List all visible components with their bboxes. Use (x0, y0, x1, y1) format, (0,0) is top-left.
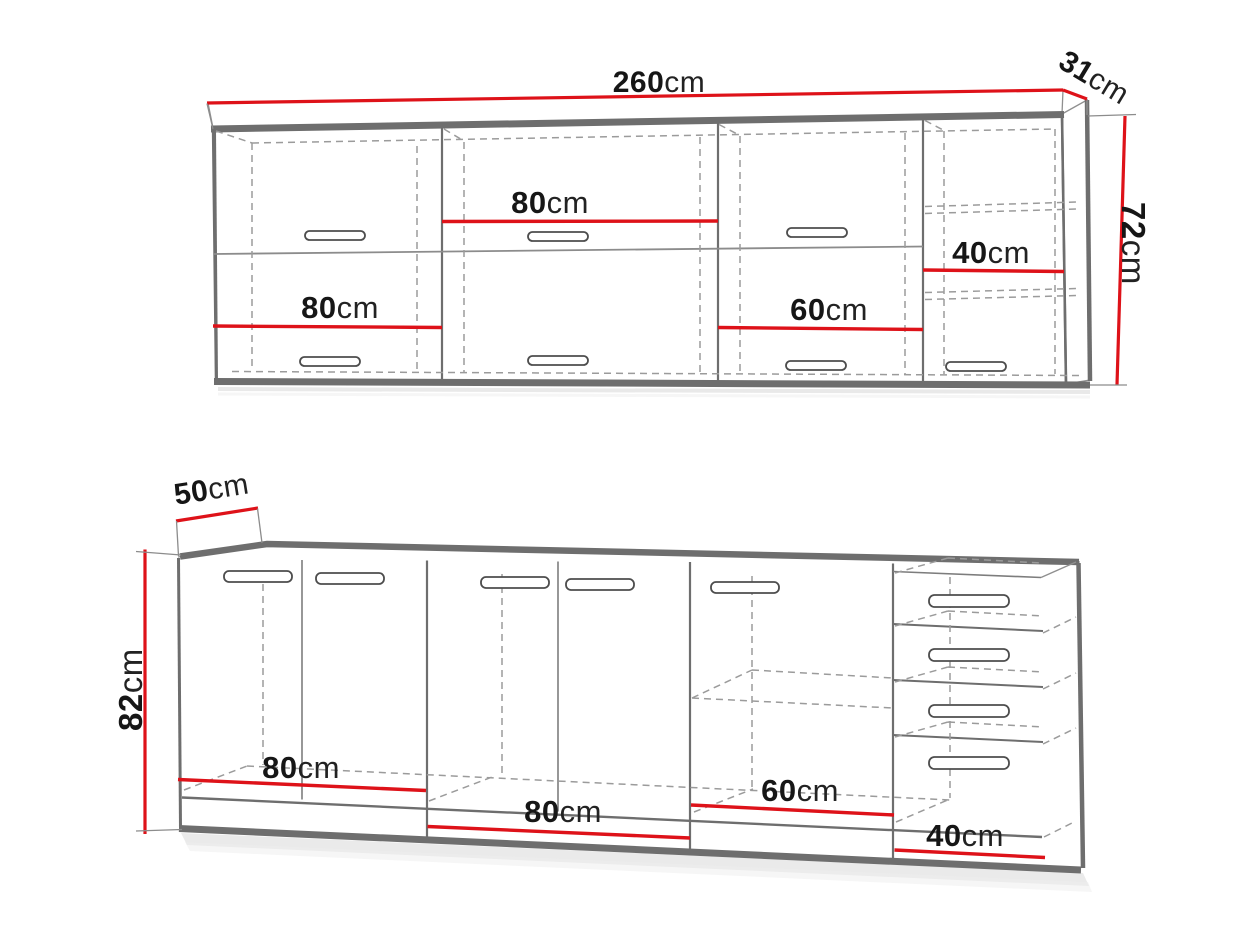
wall-cab4-label: 40cm (952, 235, 1030, 270)
door-handle-icon (305, 231, 365, 240)
wall-cabinets-drawing: 260cm 31cm 72cm 80cm 80cm 60cm 40cm (207, 44, 1152, 397)
diagram-canvas: 260cm 31cm 72cm 80cm 80cm 60cm 40cm (0, 0, 1241, 931)
door-handle-icon (786, 361, 846, 370)
door-handle-icon (946, 362, 1006, 371)
door-handle-icon (566, 579, 634, 590)
wall-cab2-label: 80cm (511, 185, 589, 220)
wall-cab4-dimension-line (923, 270, 1064, 272)
door-handle-icon (528, 232, 588, 241)
door-handle-icon (316, 573, 384, 584)
base-cab2-label: 80cm (524, 794, 602, 829)
wall-cab1-dimension-line (213, 326, 442, 328)
door-handle-icon (481, 577, 549, 588)
door-handle-icon (711, 582, 779, 593)
base-height-label: 82cm (112, 648, 149, 731)
base-cab4-label: 40cm (926, 818, 1004, 853)
wall-depth-dimension-line (1063, 90, 1087, 99)
door-handle-icon (528, 356, 588, 365)
base-cab3-label: 60cm (761, 773, 839, 808)
wall-depth-label: 31cm (1053, 44, 1135, 111)
wall-cab3-dimension-line (718, 328, 923, 330)
wall-cab1-label: 80cm (301, 290, 379, 325)
cabinet-dimension-diagram: 260cm 31cm 72cm 80cm 80cm 60cm 40cm (0, 0, 1241, 931)
base-depth-label: 50cm (172, 467, 252, 511)
door-handle-icon (787, 228, 847, 237)
wall-width-label: 260cm (613, 66, 706, 99)
drawer-handle-icon (929, 757, 1009, 769)
drawer-handle-icon (929, 595, 1009, 607)
base-cabinets-drawing: 50cm 82cm 80cm 80cm 60cm 40cm (112, 467, 1092, 892)
door-handle-icon (300, 357, 360, 366)
wall-row-shadow (218, 389, 1090, 397)
wall-cab3-label: 60cm (790, 292, 868, 327)
wall-height-label: 72cm (1115, 202, 1152, 285)
door-handle-icon (224, 571, 292, 582)
drawer-handle-icon (929, 705, 1009, 717)
base-cab1-label: 80cm (262, 750, 340, 785)
drawer-handle-icon (929, 649, 1009, 661)
wall-cab2-dimension-line (442, 221, 718, 222)
